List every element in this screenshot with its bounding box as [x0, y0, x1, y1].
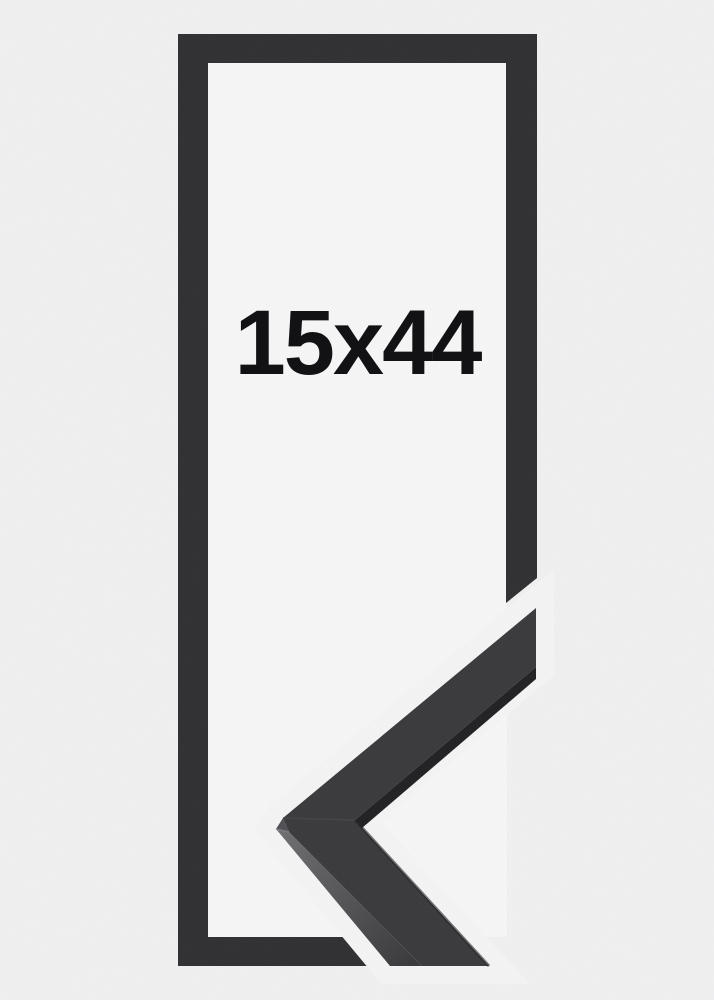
size-label: 15x44	[208, 297, 507, 389]
product-photo: 15x44	[0, 0, 714, 1000]
frame-product-art	[0, 0, 714, 1000]
film-grain	[0, 0, 714, 1000]
